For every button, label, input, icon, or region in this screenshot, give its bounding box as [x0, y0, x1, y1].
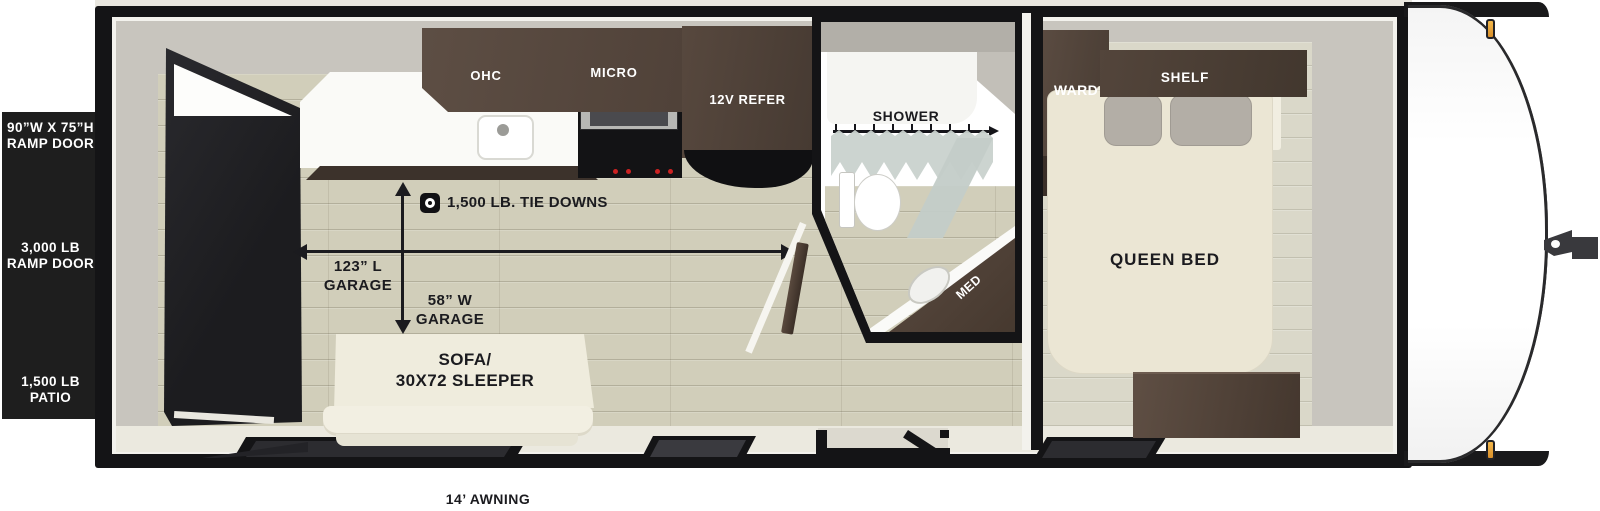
- garage-length-label: 123” L GARAGE: [300, 258, 416, 295]
- marker-light-icon: [1486, 19, 1495, 39]
- bedroom-wall-gap: [1022, 13, 1031, 450]
- marker-light-icon: [1486, 440, 1495, 460]
- entry-door-right-jamb: [940, 430, 949, 438]
- ramp-door-size-line2: RAMP DOOR: [2, 136, 99, 152]
- faucet-icon: [497, 124, 509, 136]
- sofa-seat: [323, 406, 593, 436]
- floorplan-scene: 90”W X 75”H RAMP DOOR 3,000 LB RAMP DOOR…: [0, 0, 1600, 511]
- bathroom-ceiling-band: [821, 22, 1015, 52]
- garage-width-line1: 58” W: [392, 292, 508, 311]
- tie-down-icon: [420, 193, 440, 213]
- tie-down-ring-icon: [425, 198, 435, 208]
- garage-width-label: 58” W GARAGE: [392, 292, 508, 329]
- mid-window-glass: [650, 440, 746, 457]
- kitchen-sink: [477, 115, 534, 160]
- ramp-door-size-line1: 90”W X 75”H: [2, 120, 99, 136]
- patio-capacity-line2: PATIO: [2, 390, 99, 406]
- toilet-bowl: [854, 174, 901, 231]
- pillow: [1170, 94, 1252, 146]
- awning-label: 14’ AWNING: [418, 491, 558, 508]
- shower-label: SHOWER: [831, 108, 981, 125]
- cooktop-knob: [626, 169, 631, 174]
- toilet-tank: [839, 172, 855, 228]
- shelf-label: SHELF: [1110, 70, 1260, 86]
- cooktop-knob: [668, 169, 673, 174]
- bedroom-partition-wall: [1031, 13, 1043, 450]
- bedroom-window-glass: [1042, 441, 1156, 458]
- ohc-label: OHC: [446, 68, 526, 84]
- microwave-window: [590, 112, 668, 126]
- ramp-door-capacity-label: 3,000 LB RAMP DOOR: [2, 240, 99, 272]
- arrow-up-icon: [395, 182, 411, 196]
- refer-label: 12V REFER: [684, 92, 811, 108]
- curtain-rod-arrow-icon: [989, 126, 999, 136]
- cooktop-knob: [613, 169, 618, 174]
- sofa-label: SOFA/ 30X72 SLEEPER: [358, 350, 572, 391]
- cooktop-knob: [655, 169, 660, 174]
- sofa-label-line2: 30X72 SLEEPER: [358, 371, 572, 392]
- patio-capacity-line1: 1,500 LB: [2, 374, 99, 390]
- garage-length-arrow-line: [306, 250, 782, 253]
- ward-label: WARD: [1043, 82, 1109, 99]
- sofa-base: [336, 434, 578, 446]
- queen-bed-label: QUEEN BED: [1060, 250, 1270, 270]
- ramp-door-size-label: 90”W X 75”H RAMP DOOR: [2, 120, 99, 152]
- sofa-label-line1: SOFA/: [358, 350, 572, 371]
- ramp-door-capacity-line1: 3,000 LB: [2, 240, 99, 256]
- front-cap: [1408, 5, 1548, 463]
- tie-down-label: 1,500 LB. TIE DOWNS: [447, 194, 627, 212]
- garage-length-line1: 123” L: [300, 258, 416, 277]
- bed-foot-cabinet: [1133, 372, 1300, 438]
- patio-capacity-label: 1,500 LB PATIO: [2, 374, 99, 406]
- hitch-coupler-hole: [1551, 240, 1560, 248]
- ramp-door-capacity-line2: RAMP DOOR: [2, 256, 99, 272]
- kitchen-base-cabinet: [306, 166, 598, 180]
- pillow: [1104, 94, 1162, 146]
- micro-label: MICRO: [574, 65, 654, 81]
- garage-width-line2: GARAGE: [392, 311, 508, 330]
